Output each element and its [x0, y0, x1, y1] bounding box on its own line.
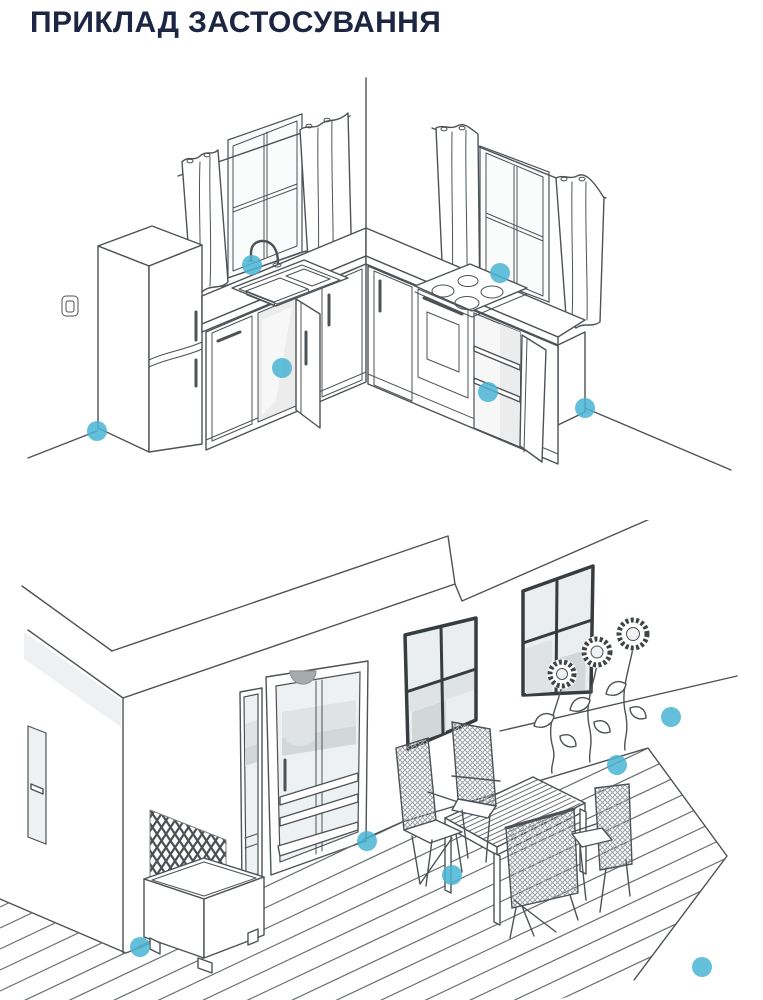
sliding-door [266, 661, 368, 875]
marker-dot [357, 831, 377, 851]
marker-dot [442, 865, 462, 885]
deck [0, 520, 763, 1000]
chair [396, 738, 464, 886]
page-title: ПРИКЛАД ЗАСТОСУВАННЯ [30, 6, 441, 40]
marker-dot [87, 421, 107, 441]
sunflower [606, 617, 650, 750]
fridge [98, 226, 202, 452]
marker-dot [661, 707, 681, 727]
house-walls [0, 632, 168, 953]
marker-dot [478, 382, 498, 402]
marker-dot [575, 398, 595, 418]
kitchen-illustration [0, 60, 763, 500]
wall-outlet [62, 296, 78, 316]
door-sidelight [240, 688, 262, 884]
marker-dot [272, 358, 292, 378]
side-wall-window [28, 726, 46, 844]
deck-boards [0, 520, 763, 1000]
marker-dot [490, 263, 510, 283]
outdoor-chairs [396, 722, 632, 938]
terrace-illustration [0, 520, 763, 1000]
table-leg [494, 853, 500, 925]
chair [506, 809, 578, 938]
marker-dot [692, 957, 712, 977]
open-dishwasher-door [296, 299, 320, 428]
roof-lines [22, 520, 762, 698]
marker-dot [130, 937, 150, 957]
marker-dot [607, 755, 627, 775]
marker-dot [242, 255, 262, 275]
